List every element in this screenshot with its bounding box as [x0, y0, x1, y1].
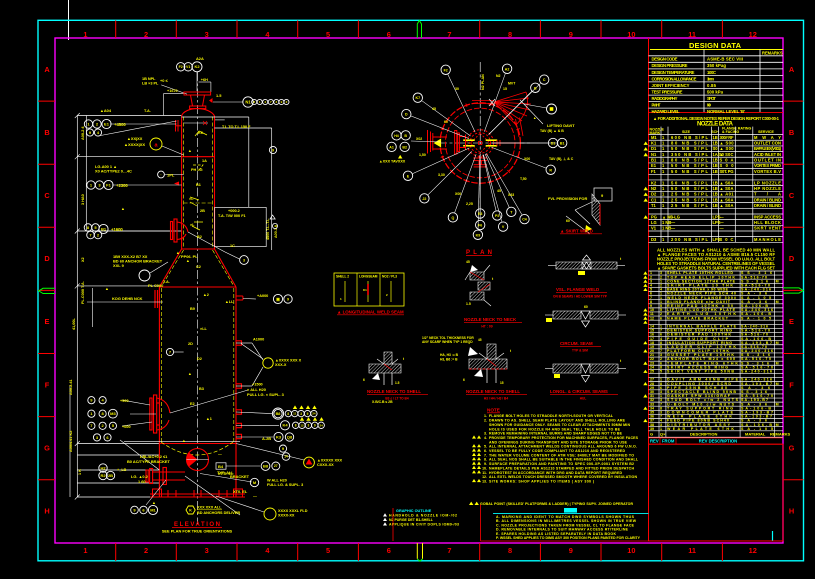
- svg-text:+0 ≤: +0 ≤: [160, 78, 169, 83]
- svg-text:+900: +900: [120, 399, 129, 403]
- svg-text:▲: ▲: [186, 259, 190, 263]
- svg-text:HANDHOLD & NOZZLE IOM-/02: HANDHOLD & NOZZLE IOM-/02: [389, 514, 457, 518]
- svg-text:BAFFLE EX (V-001): BAFFLE EX (V-001): [754, 146, 782, 151]
- svg-text:OUTLET CON: OUTLET CON: [754, 141, 781, 146]
- svg-text:A: A: [789, 65, 795, 74]
- svg-text:F6: F6: [478, 224, 482, 228]
- svg-text:A: A: [44, 65, 50, 74]
- svg-text:350 kPag: 350 kPag: [707, 63, 726, 68]
- svg-text:1B NPL: 1B NPL: [142, 77, 156, 81]
- svg-text:PP06. PL: PP06. PL: [181, 254, 198, 259]
- svg-text:XXXX XXXL FLD: XXXX XXXL FLD: [278, 509, 308, 513]
- svg-text:▲ FOR ADDITIONAL DESIGN NOTES: ▲ FOR ADDITIONAL DESIGN NOTES REFER DESI…: [653, 116, 780, 121]
- svg-text:BD ANCHORS DELIVER: BD ANCHORS DELIVER: [197, 511, 240, 515]
- svg-text:3.: 3.: [484, 432, 487, 436]
- svg-text:KOG DEHB NCK: KOG DEHB NCK: [112, 296, 143, 301]
- svg-text:24: 24: [320, 423, 324, 427]
- svg-text:XT0. EL: XT0. EL: [233, 489, 248, 494]
- svg-text:1.5: 1.5: [216, 93, 222, 98]
- svg-text:2B: 2B: [108, 473, 113, 478]
- svg-text:▲XXXX XXX X: ▲XXXX XXX X: [275, 359, 302, 363]
- svg-text:▲ S0A: ▲ S0A: [720, 180, 734, 185]
- svg-text:MANHOLE: MANHOLE: [754, 237, 781, 242]
- svg-text:SCH: SCH: [711, 130, 719, 134]
- svg-text:24: 24: [312, 412, 316, 416]
- svg-text:A2: A2: [505, 67, 510, 71]
- svg-text:N1: N1: [245, 100, 251, 105]
- svg-text:K7: K7: [415, 96, 420, 100]
- svg-text:C1: C1: [651, 197, 657, 202]
- svg-text:NO: NO: [707, 103, 712, 108]
- svg-text:60: 60: [444, 120, 448, 124]
- svg-text:▲ S00: ▲ S00: [720, 146, 735, 151]
- svg-text:SKRT VENT: SKRT VENT: [754, 226, 781, 231]
- svg-text:▲XXX TAVXXX: ▲XXX TAVXXX: [379, 160, 406, 164]
- svg-text:B4: B4: [218, 464, 224, 469]
- svg-text:PL.C000 T.A.: PL.C000 T.A.: [81, 281, 85, 304]
- svg-text:10.: 10.: [482, 466, 487, 470]
- svg-text:NAMEPLATE DETAILS PER AS1210 S: NAMEPLATE DETAILS PER AS1210 STAMPED AND…: [489, 466, 634, 470]
- svg-text:1,50: 1,50: [419, 153, 426, 157]
- svg-text:SERVICE: SERVICE: [758, 130, 774, 134]
- svg-text:C: C: [44, 191, 50, 200]
- svg-text:12: 12: [300, 423, 304, 427]
- svg-text:E: E: [45, 317, 50, 326]
- svg-text:11: 11: [688, 30, 696, 39]
- svg-text:300# RF: 300# RF: [720, 135, 734, 140]
- svg-text:ALL EXTL WELDS TOUCH DRESSED S: ALL EXTL WELDS TOUCH DRESSED SMOOTH WHER…: [489, 475, 637, 479]
- svg-text:4.: 4.: [484, 436, 487, 440]
- svg-text:3: 3: [205, 546, 209, 555]
- svg-text:×LL: ×LL: [200, 327, 208, 331]
- svg-text:TAV (B) ▲ & B: TAV (B) ▲ & B: [540, 129, 564, 133]
- svg-text:SHELL 2: SHELL 2: [336, 275, 349, 279]
- svg-text:X00: X00: [524, 157, 530, 161]
- svg-text:5: 5: [326, 546, 330, 555]
- svg-text:PL C000: PL C000: [148, 283, 163, 288]
- svg-text:RADIOGRAPHY: RADIOGRAPHY: [652, 96, 678, 101]
- svg-text:▲ S0C: ▲ S0C: [720, 152, 734, 157]
- svg-text:REV: REV: [650, 439, 659, 444]
- svg-text:SA-193-B7: SA-193-B7: [741, 415, 772, 419]
- svg-text:B2: B2: [197, 235, 202, 239]
- svg-text:·: ·: [160, 172, 161, 177]
- svg-text:A00-2 4: A00-2 4: [81, 126, 85, 140]
- svg-text:×L: ×L: [189, 197, 194, 201]
- svg-text:A-2B: A-2B: [262, 436, 271, 441]
- svg-text:D3: D3: [651, 237, 657, 242]
- svg-text:M: M: [776, 341, 779, 345]
- svg-text:1B: 1B: [713, 163, 718, 168]
- svg-text:1 60: 1 60: [138, 479, 146, 484]
- svg-text:▲XX|XX: ▲XX|XX: [127, 136, 143, 141]
- svg-text:9: 9: [307, 412, 309, 416]
- svg-text:S00: S00: [720, 163, 735, 168]
- svg-text:+1600: +1600: [111, 227, 123, 232]
- svg-text:▲: ▲: [152, 500, 156, 505]
- svg-text:▲: ▲: [188, 372, 192, 376]
- svg-text:3: 3: [300, 412, 302, 416]
- svg-text:27: 27: [274, 464, 278, 468]
- svg-text:8.: 8.: [484, 458, 487, 462]
- svg-text:LB ×3 PL: LB ×3 PL: [142, 82, 159, 86]
- svg-text:ON B SEAMS / HD LOWER SIM TYP: ON B SEAMS / HD LOWER SIM TYP: [553, 295, 608, 299]
- svg-text:CORROSION ALLOWANCE: CORROSION ALLOWANCE: [652, 76, 697, 81]
- svg-text:12.: 12.: [482, 475, 487, 479]
- svg-text:45: 45: [432, 107, 436, 111]
- svg-text:▲A04: ▲A04: [100, 108, 112, 113]
- svg-text:500 kPa: 500 kPa: [707, 90, 724, 95]
- svg-text:▲ S0A: ▲ S0A: [720, 186, 734, 191]
- svg-text:2,25: 2,25: [466, 202, 473, 206]
- svg-text:8: 8: [287, 412, 289, 416]
- svg-text:C2: C2: [196, 265, 201, 269]
- svg-text:60: 60: [584, 305, 588, 309]
- svg-text:1B: 1B: [713, 169, 718, 174]
- svg-text:M: M: [776, 382, 779, 386]
- svg-text:1 NB: 1 NB: [662, 226, 671, 231]
- svg-text:8: 8: [508, 30, 512, 39]
- svg-text:JOINT EFFICIENCY: JOINT EFFICIENCY: [652, 83, 690, 88]
- svg-text:N2 PLAN: N2 PLAN: [481, 74, 485, 90]
- svg-text:G: G: [650, 432, 653, 437]
- svg-text:1C: 1C: [230, 244, 235, 248]
- svg-text:B: B: [789, 128, 794, 137]
- svg-text:6: 6: [387, 546, 391, 555]
- svg-text:X0 AC/TYPE2 0…4C: X0 AC/TYPE2 0…4C: [95, 169, 132, 174]
- svg-text:60: 60: [566, 219, 570, 223]
- svg-text:M: M: [776, 402, 779, 406]
- svg-text:+600: +600: [122, 425, 131, 429]
- svg-text:C: C: [789, 191, 795, 200]
- svg-text:PULL LG. × SUPL. 3: PULL LG. × SUPL. 3: [247, 392, 285, 397]
- svg-text:INSP ACCESS: INSP ACCESS: [754, 214, 781, 219]
- svg-text:SIZE: SIZE: [682, 130, 691, 134]
- svg-text:M: M: [776, 361, 779, 365]
- svg-text:2B: 2B: [200, 209, 205, 213]
- svg-text:▲XXXXX XXX: ▲XXXXX XXX: [317, 459, 343, 463]
- svg-text:K4: K4: [282, 423, 288, 428]
- svg-text:5: 5: [660, 370, 662, 374]
- svg-text:DESIGN CODE: DESIGN CODE: [652, 57, 678, 62]
- svg-text:+2300: +2300: [116, 183, 128, 188]
- svg-text:NO2 / PL3: NO2 / PL3: [382, 275, 397, 279]
- svg-text:100C: 100C: [707, 70, 716, 75]
- svg-text:M1: M1: [651, 135, 657, 140]
- svg-text:+1500: +1500: [252, 383, 263, 387]
- svg-text:D2: D2: [197, 357, 202, 361]
- svg-text:B1: B1: [196, 183, 201, 187]
- svg-text:1A: 1A: [202, 159, 207, 163]
- svg-text:B3: B3: [199, 387, 204, 391]
- svg-text:600 NB S/PL: 600 NB S/PL: [671, 135, 708, 140]
- svg-text:NOZZLE NECK TO SHELL: NOZZLE NECK TO SHELL: [466, 389, 520, 394]
- svg-text:G: G: [44, 443, 50, 452]
- svg-text:ANY SCARF WHEN TYP 1 REQD: ANY SCARF WHEN TYP 1 REQD: [422, 340, 473, 344]
- svg-text:▲1: ▲1: [206, 417, 212, 421]
- svg-text:B0 AC/TYPE BRACKET: B0 AC/TYPE BRACKET: [127, 459, 170, 464]
- svg-text:DESCRIPTION: DESCRIPTION: [690, 432, 717, 437]
- svg-text:HP NOZZLE: HP NOZZLE: [754, 186, 781, 191]
- svg-text:▲ S0A: ▲ S0A: [720, 197, 734, 202]
- svg-text:N1: N1: [651, 152, 657, 157]
- svg-text:PH LG: PH LG: [191, 168, 203, 172]
- svg-text:▲ SKIRT WELD: ▲ SKIRT WELD: [560, 229, 593, 234]
- svg-text:PG: PG: [651, 214, 657, 219]
- svg-text:NOTE: NOTE: [487, 408, 500, 413]
- svg-text:HLL BLOCK: HLL BLOCK: [754, 220, 781, 225]
- svg-text:6.: 6.: [484, 449, 487, 453]
- svg-text:SHOWN FOR GUIDANCE ONLY. SEAMS: SHOWN FOR GUIDANCE ONLY. SEAMS TO CLEAR …: [489, 423, 630, 427]
- svg-text:G: G: [789, 443, 795, 452]
- svg-text:A1000: A1000: [253, 338, 264, 342]
- svg-text:GRAPHIC OUTLINE: GRAPHIC OUTLINE: [396, 509, 432, 513]
- svg-text:B: B: [534, 86, 537, 90]
- svg-text:▲: ▲: [176, 250, 180, 255]
- svg-text:VORTEX PRMD: VORTEX PRMD: [754, 163, 781, 168]
- svg-text:12: 12: [749, 546, 757, 555]
- svg-text:SPOT: SPOT: [707, 96, 716, 101]
- svg-text:S0C: S0C: [720, 237, 734, 242]
- svg-text:F: F: [789, 380, 794, 389]
- svg-text:A00-2.41: A00-2.41: [69, 379, 73, 395]
- svg-text:VSL. FLANGE WELD: VSL. FLANGE WELD: [556, 287, 599, 292]
- svg-text:+6H: +6H: [201, 78, 208, 82]
- svg-text:D1: D1: [551, 142, 556, 146]
- svg-text:M: M: [776, 423, 779, 427]
- svg-text:MVT: MVT: [508, 82, 516, 86]
- svg-text:B1: B1: [560, 142, 565, 146]
- svg-text:NOZZLE NECK TO NECK: NOZZLE NECK TO NECK: [464, 317, 517, 322]
- svg-text:H2: H2: [100, 465, 106, 470]
- svg-text:▲ SPARE GASKETS BOLTS SUPPLIED: ▲ SPARE GASKETS BOLTS SUPPLIED WITH EACH…: [657, 266, 775, 271]
- svg-text:1B: 1B: [713, 158, 718, 163]
- svg-text:M: M: [776, 300, 779, 304]
- svg-text:2: 2: [144, 30, 148, 39]
- svg-text:0.85: 0.85: [707, 83, 717, 88]
- svg-text:1 NB: 1 NB: [662, 220, 671, 225]
- svg-text:B1: B1: [651, 158, 657, 163]
- svg-text:C: C: [543, 78, 546, 82]
- svg-text:M1: M1: [150, 507, 156, 512]
- svg-text:2.: 2.: [484, 419, 487, 423]
- svg-text:VESSEL TO BE FULLY CODE COMPLI: VESSEL TO BE FULLY CODE COMPLIANT TO AS1…: [489, 449, 625, 453]
- svg-text:+4500: +4500: [114, 122, 126, 127]
- svg-text:1: 1: [83, 30, 87, 39]
- svg-text:1.: 1.: [484, 414, 487, 418]
- svg-text:E1: E1: [104, 121, 110, 126]
- svg-text:CIRCUM. SEAM: CIRCUM. SEAM: [560, 341, 593, 346]
- svg-text:1B: 1B: [713, 180, 718, 185]
- svg-text:TEST PRESSURE: TEST PRESSURE: [652, 90, 683, 95]
- svg-text:1B: 1B: [713, 135, 718, 140]
- svg-text:E2: E2: [190, 402, 195, 406]
- svg-text:1 K: 1 K: [78, 469, 82, 475]
- svg-text:F1: F1: [106, 182, 111, 187]
- svg-text:R2: R2: [100, 473, 106, 478]
- svg-text:1.5: 1.5: [466, 302, 471, 306]
- svg-text:S0: S0: [713, 146, 719, 151]
- svg-text:ALL SEAL NOS SHALL BE SUITABLE: ALL SEAL NOS SHALL BE SUITABLE IN THE FI…: [489, 458, 639, 462]
- svg-text:REMOVE REMAINING INTERNAL BURR: REMOVE REMAINING INTERNAL BURRS AND SHAR…: [489, 432, 623, 436]
- svg-text:B: B: [44, 128, 49, 137]
- svg-text:F: F: [45, 380, 50, 389]
- svg-text:APPLIQUE IN CIVIT DOPLS IOM: APPLIQUE IN CIVIT DOPLS IOM9-/03: [389, 523, 459, 527]
- svg-text:FLANGE BOLT HOLES TO STRADDLE: FLANGE BOLT HOLES TO STRADDLE NORTH-SOUT…: [489, 414, 614, 418]
- svg-text:& FACING: & FACING: [722, 130, 739, 134]
- svg-text:+A000: +A000: [257, 294, 268, 298]
- svg-text:REMARKS: REMARKS: [770, 432, 791, 437]
- svg-text:LIFTING DAVIT: LIFTING DAVIT: [547, 123, 575, 128]
- svg-text:▲ S00: ▲ S00: [720, 141, 735, 146]
- svg-text:NORMAL LEVEL 'B': NORMAL LEVEL 'B': [707, 109, 745, 114]
- svg-text:N2: N2: [651, 186, 657, 191]
- svg-text:▲ LONGITUDINAL WELD SEAM: ▲ LONGITUDINAL WELD SEAM: [337, 310, 404, 315]
- svg-text:▲: ▲: [182, 439, 186, 443]
- svg-text:2: 2: [144, 546, 148, 555]
- svg-text:—: —: [218, 452, 222, 456]
- svg-text:R: R: [549, 168, 552, 172]
- svg-text:N2 PURGE DET B1-SHELL: N2 PURGE DET B1-SHELL: [389, 518, 434, 522]
- svg-text:NAME PLATE BRACKET: NAME PLATE BRACKET: [667, 316, 729, 320]
- svg-text:1.5: 1.5: [395, 381, 400, 385]
- svg-text:A00/4.41 K2: A00/4.41 K2: [69, 431, 73, 452]
- svg-text:3: 3: [308, 424, 310, 428]
- svg-text:45: 45: [497, 189, 501, 193]
- svg-text:11: 11: [688, 546, 696, 555]
- svg-text:P2: P2: [495, 214, 499, 218]
- svg-text:1B: 1B: [713, 141, 718, 146]
- svg-text:D: D: [789, 254, 795, 263]
- svg-text:W ALL H20: W ALL H20: [267, 479, 287, 483]
- svg-text:Q×: Q×: [660, 432, 666, 437]
- svg-text:3mm: 3mm: [707, 76, 714, 81]
- svg-text:F2: F2: [444, 68, 448, 72]
- svg-text:E1: E1: [651, 163, 657, 168]
- svg-text:X.B/C.B ≤ 2B: X.B/C.B ≤ 2B: [372, 400, 393, 404]
- svg-text:X2: X2: [81, 257, 85, 262]
- svg-text:11: 11: [293, 412, 297, 416]
- svg-text:E3: E3: [478, 212, 482, 216]
- svg-text:1PL: 1PL: [167, 173, 175, 178]
- svg-text:+000.2: +000.2: [228, 209, 240, 213]
- svg-text:DRAIN / BLIND: DRAIN / BLIND: [754, 203, 781, 208]
- svg-text:41,00L: 41,00L: [72, 317, 76, 330]
- svg-text:LG: LG: [651, 220, 657, 225]
- svg-text:B8: B8: [276, 412, 281, 416]
- svg-text:FULL LG. & SUPL. 3: FULL LG. & SUPL. 3: [267, 483, 303, 487]
- svg-text:GOBAL POINT (SKILLED’ PLATFORM: GOBAL POINT (SKILLED’ PLATFORMS & LADDER…: [480, 502, 633, 506]
- svg-text:—: —: [253, 493, 257, 498]
- svg-text:B1: B1: [101, 226, 107, 231]
- svg-text:C4: C4: [522, 218, 527, 222]
- svg-text:8: 8: [508, 546, 512, 555]
- svg-text:▲: ▲: [121, 206, 125, 211]
- svg-text:S0T. PG: S0T. PG: [720, 169, 734, 174]
- svg-text:39: 39: [650, 427, 654, 431]
- svg-text:A1: A1: [389, 146, 394, 150]
- svg-text:6: 6: [363, 378, 365, 382]
- svg-text:▲XXXX|XX: ▲XXXX|XX: [124, 142, 145, 147]
- svg-text:H: H: [44, 507, 49, 516]
- svg-text:×L: ×L: [190, 223, 195, 227]
- svg-text:V1: V1: [651, 226, 657, 231]
- svg-text:H: H: [789, 507, 794, 516]
- svg-text:7: 7: [447, 546, 451, 555]
- svg-text:XXX-X: XXX-X: [275, 363, 287, 367]
- svg-text:D2: D2: [651, 192, 657, 197]
- svg-text:B2: B2: [402, 146, 407, 150]
- svg-text:10: 10: [627, 30, 635, 39]
- svg-text:K: K: [189, 509, 192, 513]
- svg-text:T,50: T,50: [520, 177, 527, 181]
- svg-text:9: 9: [569, 30, 573, 39]
- svg-text:DESIGN PRESSURE: DESIGN PRESSURE: [652, 63, 688, 68]
- svg-text:K2: K2: [194, 64, 200, 69]
- svg-text:1B: 1B: [713, 197, 718, 202]
- svg-text:DESIGN DATA: DESIGN DATA: [689, 41, 742, 50]
- svg-text:HA, H3 := B: HA, H3 := B: [440, 353, 459, 357]
- svg-text:SITE WORKS: SHOP APPLIES TO IT: SITE WORKS: SHOP APPLIES TO ITEMS ( ASY …: [489, 480, 594, 484]
- svg-text:BRACKET: BRACKET: [230, 474, 250, 479]
- svg-text:M: M: [776, 279, 779, 283]
- svg-text:1B: 1B: [713, 192, 718, 197]
- svg-text:+1670: +1670: [167, 89, 178, 93]
- svg-text:▲ A01: ▲ A01: [720, 192, 735, 197]
- svg-text:D: D: [44, 254, 50, 263]
- svg-text:3: 3: [205, 30, 209, 39]
- svg-text:7: 7: [447, 30, 451, 39]
- svg-text:K2: K2: [651, 180, 657, 185]
- svg-text:1: 1: [660, 427, 662, 431]
- svg-text:DRAIN / BLIND: DRAIN / BLIND: [754, 197, 781, 202]
- svg-text:9: 9: [314, 424, 316, 428]
- svg-text:T1: T1: [651, 203, 657, 208]
- svg-text:T.A.: T.A.: [163, 279, 170, 284]
- svg-text:OUTLET IN: OUTLET IN: [754, 158, 781, 163]
- svg-text:▲2: ▲2: [203, 293, 209, 297]
- svg-text:14: 14: [284, 455, 288, 459]
- svg-text:1: 1: [83, 546, 87, 555]
- svg-text:T.A.: T.A.: [144, 108, 151, 113]
- svg-text:▲: ▲: [188, 149, 192, 153]
- svg-text:XXXX-XX: XXXX-XX: [278, 514, 295, 518]
- svg-text:J2: J2: [422, 197, 426, 201]
- svg-text:K9: K9: [476, 233, 481, 237]
- svg-text:4500 T.L–T.L: 4500 T.L–T.L: [266, 218, 270, 240]
- svg-text:T.A. T/W 000 F1: T.A. T/W 000 F1: [218, 214, 246, 218]
- svg-text:▲ S0A: ▲ S0A: [720, 203, 734, 208]
- svg-text:REMARKS: REMARKS: [762, 51, 783, 56]
- svg-text:HUL: HUL: [580, 397, 587, 401]
- svg-text:15: 15: [500, 381, 504, 385]
- svg-text:VORTEX B.V: VORTEX B.V: [754, 169, 781, 174]
- svg-text:Q8: Q8: [287, 434, 293, 439]
- svg-text:LP NOZZLE: LP NOZZLE: [754, 180, 781, 185]
- svg-text:6: 6: [387, 30, 391, 39]
- svg-text:FVL PROVISION FOR: FVL PROVISION FOR: [548, 196, 587, 201]
- svg-text:S0A: S0A: [720, 158, 734, 163]
- svg-text:200 NB S/PL: 200 NB S/PL: [671, 237, 708, 242]
- svg-text:45: 45: [478, 338, 482, 342]
- svg-text:E: E: [789, 317, 794, 326]
- svg-text:6: 6: [463, 378, 465, 382]
- svg-text:V1: V1: [186, 65, 190, 69]
- svg-text:Q: Q: [452, 216, 455, 220]
- svg-text:CXXX-XX: CXXX-XX: [317, 463, 334, 467]
- svg-text:D: D: [405, 113, 408, 117]
- svg-text:B: B: [404, 134, 407, 138]
